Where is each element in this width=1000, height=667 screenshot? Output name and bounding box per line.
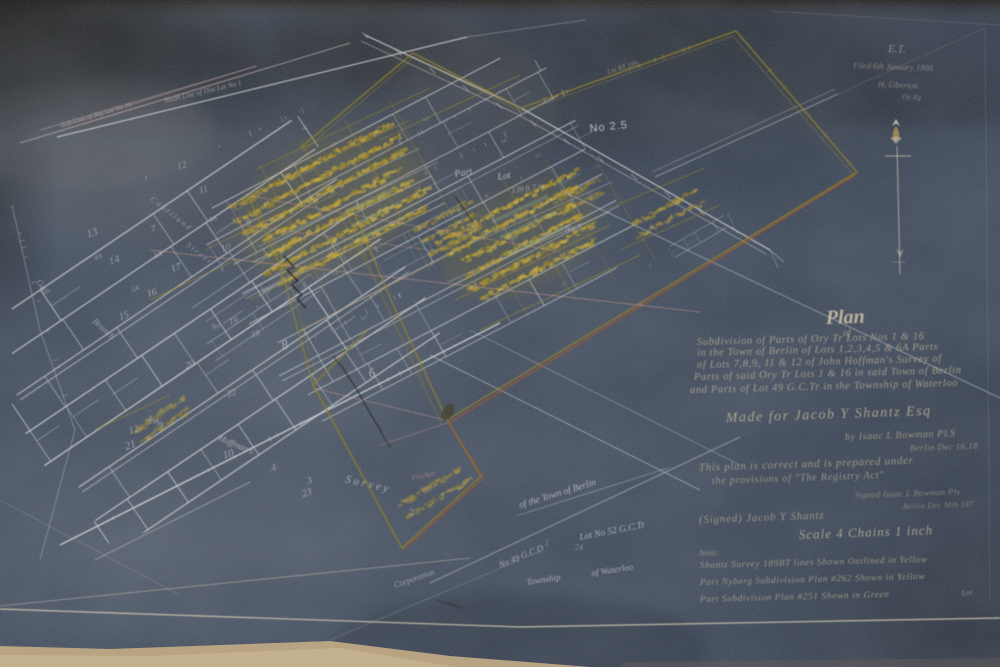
svg-text:Plan: Plan bbox=[824, 306, 865, 329]
svg-text:H. Liberton: H. Liberton bbox=[877, 79, 918, 90]
svg-text:Dy Rg: Dy Rg bbox=[901, 92, 922, 102]
svg-text:E.T.: E.T. bbox=[887, 43, 906, 56]
svg-text:1: 1 bbox=[545, 538, 549, 547]
svg-text:Note:: Note: bbox=[698, 547, 719, 558]
svg-text:24: 24 bbox=[575, 543, 583, 552]
